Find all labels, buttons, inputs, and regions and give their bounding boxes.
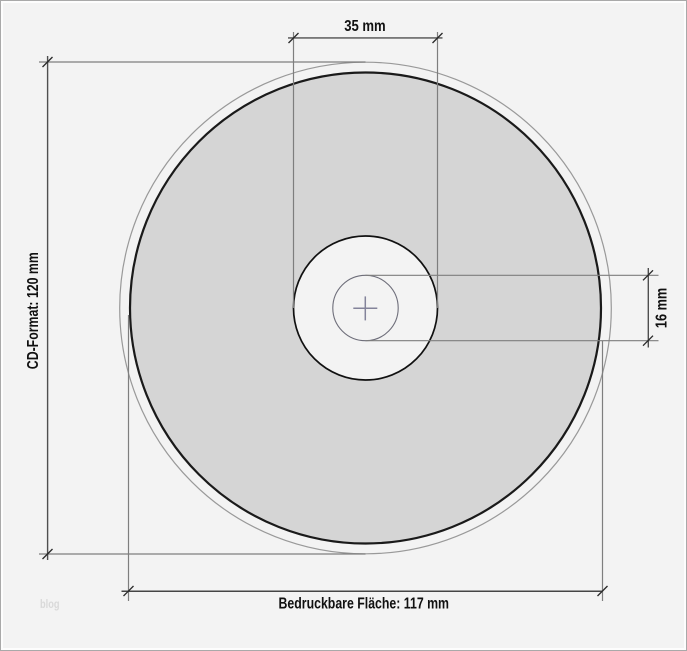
svg-text:CD-Format: 120 mm: CD-Format: 120 mm [25,252,42,369]
svg-text:35 mm: 35 mm [344,18,386,35]
svg-text:16 mm: 16 mm [654,288,671,328]
svg-text:blog: blog [40,599,60,611]
svg-text:Bedruckbare Fläche: 117 mm: Bedruckbare Fläche: 117 mm [279,596,450,613]
